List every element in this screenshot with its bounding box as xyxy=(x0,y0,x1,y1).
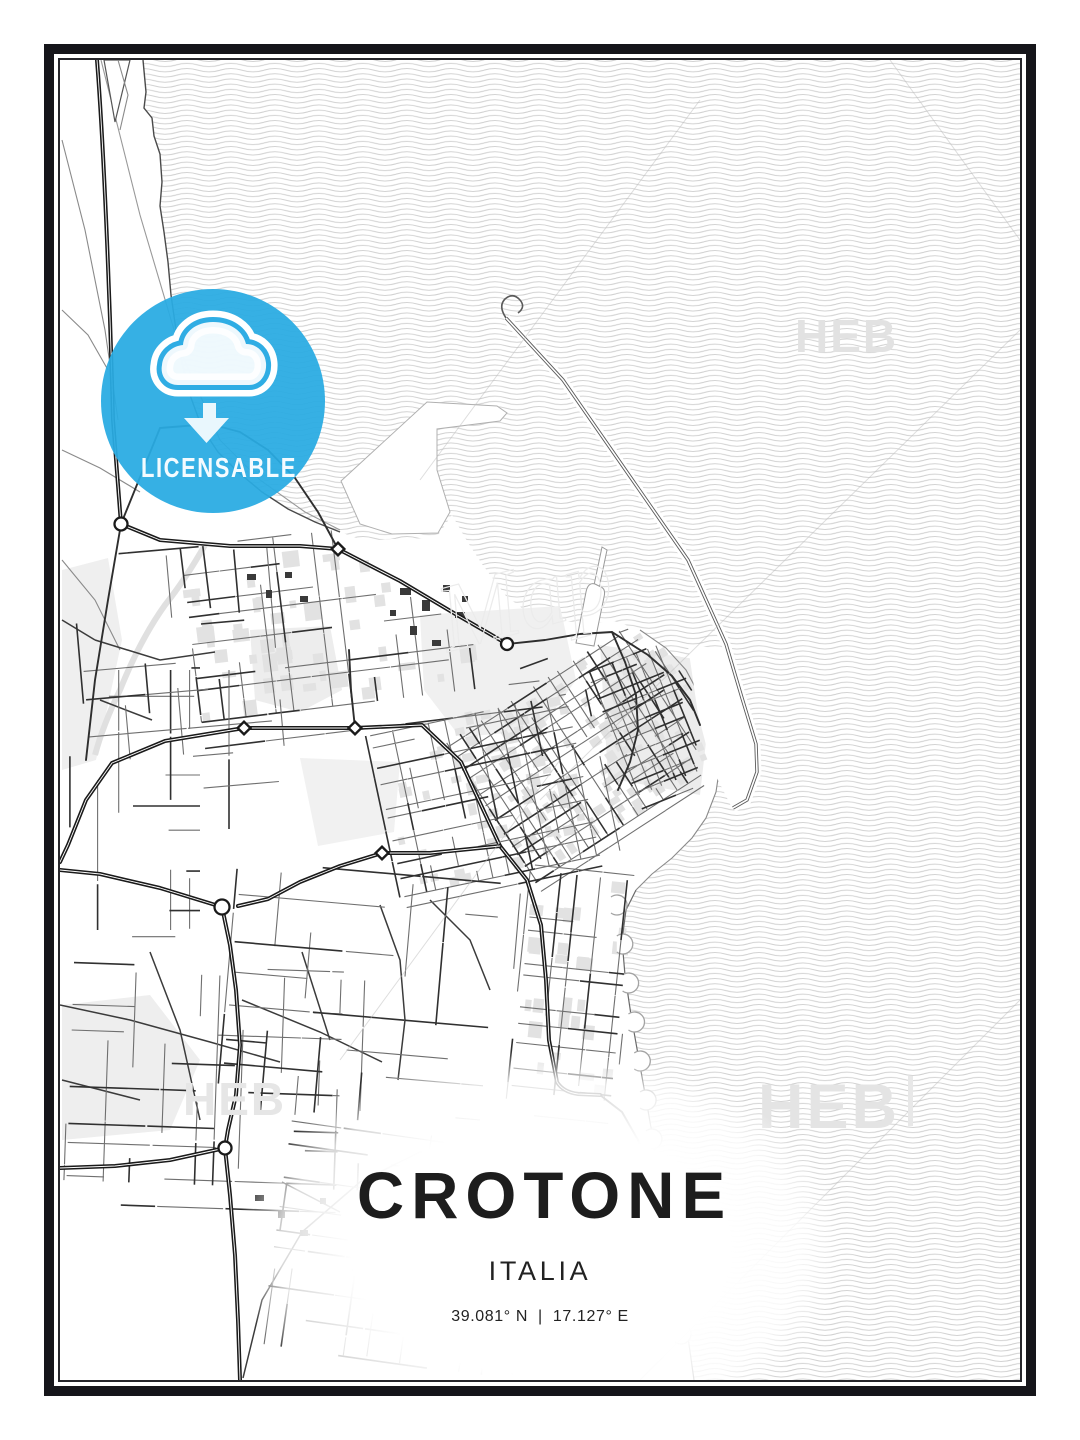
svg-text:LICENSABLE: LICENSABLE xyxy=(141,452,297,483)
